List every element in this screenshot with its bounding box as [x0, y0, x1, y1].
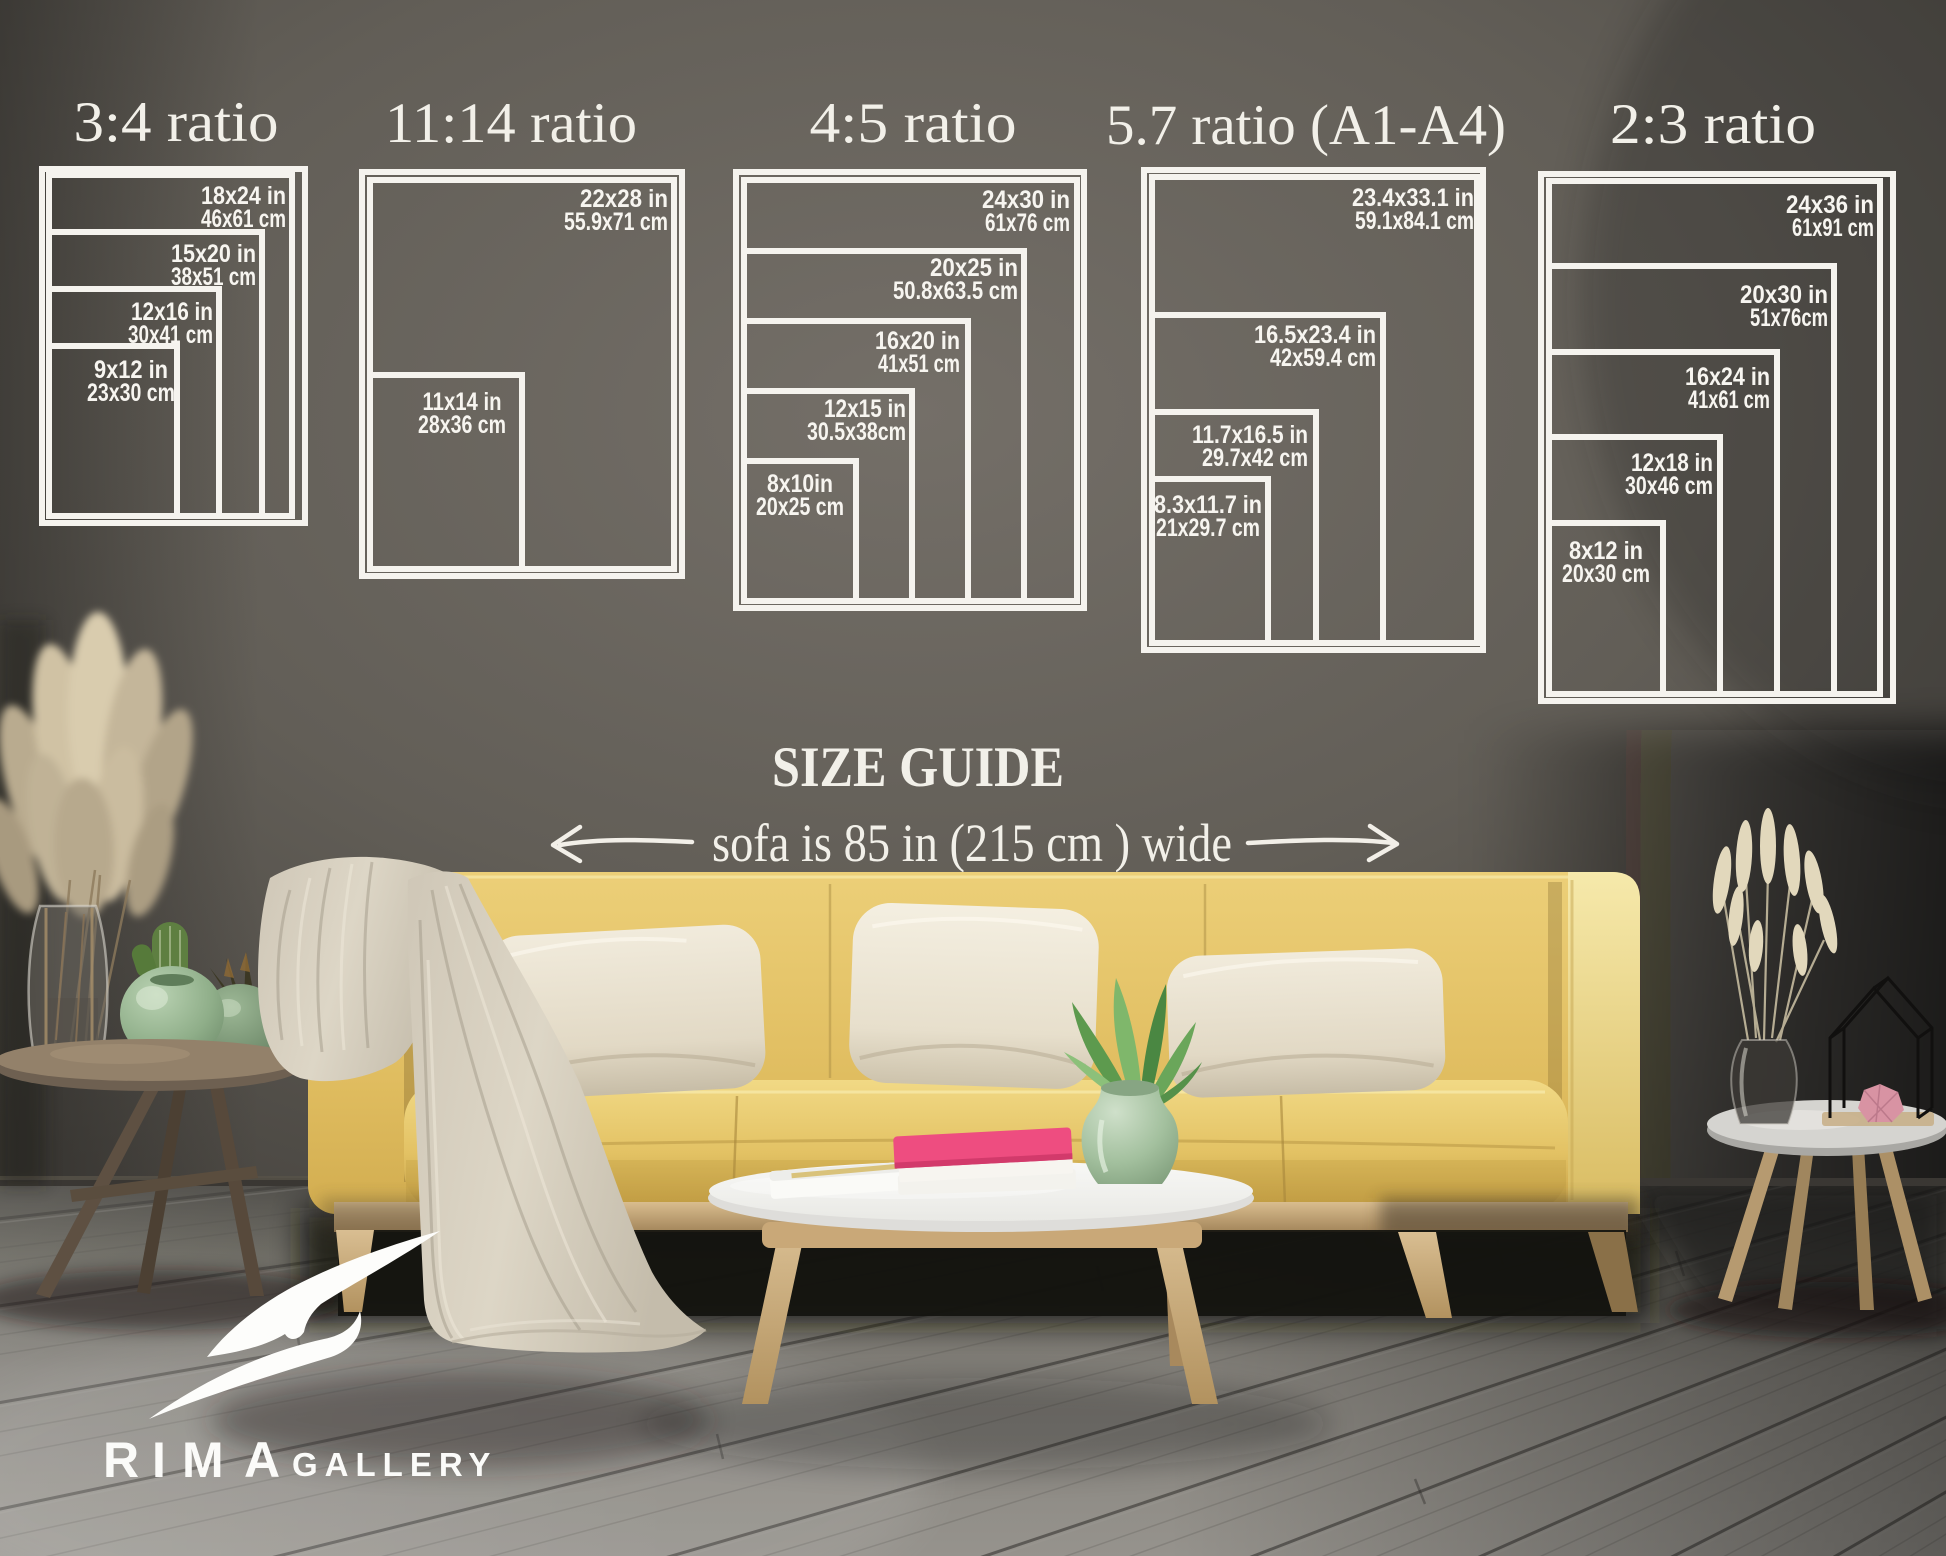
svg-text:59.1x84.1 cm: 59.1x84.1 cm	[1355, 207, 1474, 235]
svg-text:2:3 ratio: 2:3 ratio	[1610, 93, 1816, 156]
svg-text:41x51 cm: 41x51 cm	[878, 350, 960, 378]
svg-text:M: M	[182, 1432, 234, 1488]
svg-text:61x91 cm: 61x91 cm	[1792, 214, 1874, 242]
svg-text:30.5x38cm: 30.5x38cm	[807, 418, 906, 446]
svg-text:3:4 ratio: 3:4 ratio	[74, 91, 279, 154]
svg-text:21x29.7 cm: 21x29.7 cm	[1156, 514, 1260, 542]
svg-text:sofa is 85 in (215 cm ) wide: sofa is 85 in (215 cm ) wide	[712, 813, 1232, 873]
svg-text:20x30 cm: 20x30 cm	[1562, 560, 1650, 588]
svg-text:46x61 cm: 46x61 cm	[201, 205, 286, 233]
svg-text:I: I	[152, 1432, 176, 1488]
svg-text:GALLERY: GALLERY	[292, 1446, 497, 1483]
svg-text:55.9x71 cm: 55.9x71 cm	[564, 208, 668, 236]
svg-text:R: R	[103, 1432, 149, 1488]
svg-text:20x25 cm: 20x25 cm	[756, 493, 844, 521]
svg-text:23x30 cm: 23x30 cm	[87, 379, 175, 407]
svg-text:38x51 cm: 38x51 cm	[171, 263, 256, 291]
svg-text:30x41 cm: 30x41 cm	[128, 321, 213, 349]
svg-text:61x76 cm: 61x76 cm	[985, 209, 1070, 237]
svg-text:11:14 ratio: 11:14 ratio	[385, 92, 637, 155]
svg-text:51x76cm: 51x76cm	[1750, 304, 1828, 332]
svg-text:SIZE GUIDE: SIZE GUIDE	[772, 736, 1064, 799]
svg-text:41x61 cm: 41x61 cm	[1688, 386, 1770, 414]
svg-text:28x36 cm: 28x36 cm	[418, 411, 506, 439]
svg-text:30x46 cm: 30x46 cm	[1625, 472, 1713, 500]
svg-text:42x59.4 cm: 42x59.4 cm	[1270, 344, 1376, 372]
svg-text:4:5 ratio: 4:5 ratio	[810, 92, 1017, 155]
svg-text:29.7x42 cm: 29.7x42 cm	[1202, 444, 1308, 472]
svg-text:5.7 ratio (A1-A4): 5.7 ratio (A1-A4)	[1106, 94, 1506, 157]
svg-text:A: A	[244, 1432, 290, 1488]
svg-text:50.8x63.5 cm: 50.8x63.5 cm	[893, 277, 1018, 305]
